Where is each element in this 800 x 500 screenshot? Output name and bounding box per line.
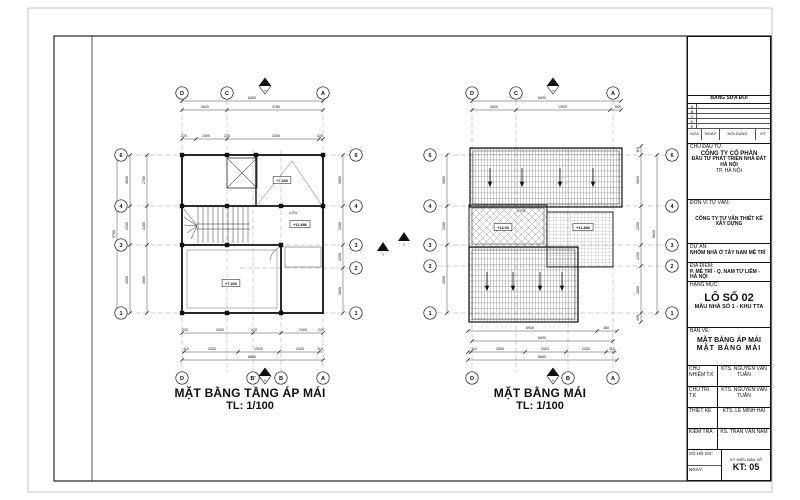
- title-block: BẢNG SỬA ĐỔI A B C D E SỬA NGÀY NỘI DUNG…: [687, 36, 771, 481]
- dimension-text: 110: [317, 347, 323, 351]
- dimension-text: 220: [317, 134, 323, 138]
- location-section: ĐỊA ĐIỂM: P. MỄ TRÌ - Q. NAM TỪ LIÊM - H…: [688, 262, 770, 281]
- dimension-text: 4000: [125, 276, 129, 284]
- signature-name: KTS. NGUYỄN VĂN TUẤN: [718, 366, 770, 386]
- dimension-text: 2100: [338, 222, 342, 230]
- dimension-text: 3340: [272, 134, 280, 138]
- grid-bubble-label: 3: [119, 243, 122, 249]
- dimension-text: 9640: [652, 230, 656, 238]
- grid-bubble-label: D: [180, 91, 184, 97]
- dimension-text: 110: [636, 147, 640, 153]
- grid-bubble-label: 6: [670, 153, 673, 159]
- dimension-text: 3960: [142, 276, 146, 284]
- dimension-text: 2100: [442, 222, 446, 230]
- grid-bubble-label: C: [514, 91, 518, 97]
- dimension-text: 110: [183, 347, 189, 351]
- drawing-sheet: 6400262037802202400220334022022034002202…: [0, 0, 800, 500]
- grid-bubble-label: B': [250, 376, 256, 382]
- consultant-name: CÔNG TY TƯ VẤN THIẾT KẾ XÂY DỰNG: [690, 217, 768, 229]
- grid-bubble-label: 3: [428, 243, 431, 249]
- revision-columns: SỬA NGÀY NỘI DUNG KÝ: [688, 129, 770, 140]
- slope-label: i=2%: [289, 211, 298, 215]
- attic-plan-title: MẶT BẰNG TẦNG ÁP MÁI: [120, 386, 380, 400]
- location-name: P. MỄ TRÌ - Q. NAM TỪ LIÊM - HÀ NỘI: [690, 270, 768, 282]
- dimension-text: 2160: [142, 222, 146, 230]
- dimension-text: 2420: [582, 347, 590, 351]
- dimension-text: 6400: [538, 336, 546, 340]
- grid-bubble-label: 1: [428, 311, 431, 317]
- dimension-text: 8660: [538, 355, 546, 359]
- level-label: +7.400: [225, 282, 237, 286]
- grid-bubble-label: C: [225, 91, 229, 97]
- grid-bubble-label: D: [470, 91, 474, 97]
- signature-name: KS. TRẦN VĂN NAM: [718, 429, 770, 449]
- grid-bubble-label: D: [470, 376, 474, 382]
- roof-plan-title: MẶT BẰNG MÁI: [420, 386, 660, 400]
- consultant-label: ĐƠN VỊ TƯ VẤN:: [690, 201, 768, 207]
- attic-plan-title-block: MẶT BẰNG TẦNG ÁP MÁI TL: 1/100: [120, 386, 380, 412]
- dimension-text: 3780: [272, 105, 280, 109]
- grid-bubble-label: 6: [354, 153, 357, 159]
- level-label: +11.886: [576, 226, 590, 230]
- dimension-text: 1200: [636, 252, 640, 260]
- dimension-text: 2780: [142, 176, 146, 184]
- grid-bubble-label: 1: [119, 311, 122, 317]
- grid-bubble-label: A: [611, 376, 615, 382]
- grid-bubble-label: 1: [354, 311, 357, 317]
- dimension-text: 3600: [338, 176, 342, 184]
- grid-bubble-label: 2: [354, 266, 357, 272]
- dimension-text: 2920: [559, 105, 567, 109]
- signature-row: THIẾT KẾ KTS. LÊ MINH HẢI: [688, 407, 770, 428]
- attic-plan-scale: TL: 1/100: [120, 400, 380, 412]
- dimension-text: 380: [603, 326, 609, 330]
- dimension-text: 540: [615, 105, 621, 109]
- dimension-text: 8660: [248, 355, 256, 359]
- grid-bubble-label: A: [611, 91, 615, 97]
- dimension-text: 3600: [442, 176, 446, 184]
- dimension-text: 2400: [299, 328, 307, 332]
- dimension-text: 2100: [636, 222, 640, 230]
- item-name: LÔ SỐ 02: [690, 292, 768, 305]
- level-label: +11.886: [293, 223, 307, 227]
- dimension-text: 110: [471, 347, 477, 351]
- signature-name: KTS. LÊ MINH HẢI: [718, 408, 770, 428]
- dimension-text: 400: [636, 315, 640, 321]
- grid-bubble-label: A: [321, 376, 325, 382]
- dimension-text: 3300: [496, 347, 504, 351]
- signature-name: KTS. NGUYỄN VĂN TUẤN: [718, 387, 770, 407]
- grid-bubble-label: 1: [670, 311, 673, 317]
- signature-row: CHỦ TRÌ T.K KTS. NGUYỄN VĂN TUẤN: [688, 386, 770, 407]
- dimension-text: 3600: [125, 176, 129, 184]
- item-section: HẠNG MỤC: LÔ SỐ 02 MẪU NHÀ SỐ 1 - KHU TT…: [688, 281, 770, 327]
- dimension-text: 2520: [255, 347, 263, 351]
- grid-bubble-label: D: [180, 376, 184, 382]
- signature-label: CHỦ NHIỆM T.K: [688, 366, 718, 386]
- dimension-text: 6400: [248, 96, 256, 100]
- revision-header: BẢNG SỬA ĐỔI: [688, 96, 770, 104]
- slope-label: i=2%: [517, 209, 526, 213]
- dimension-text: 3303: [208, 347, 216, 351]
- dimension-text: 2100: [125, 222, 129, 230]
- roof-plan-scale: TL: 1/100: [420, 400, 660, 412]
- dimension-text: 2800: [338, 287, 342, 295]
- grid-bubble-label: 3: [354, 243, 357, 249]
- north-marker-label: A: [552, 379, 554, 383]
- signature-row: CHỦ NHIỆM T.K KTS. NGUYỄN VĂN TUẤN: [688, 365, 770, 386]
- dimension-text: 2620: [490, 105, 498, 109]
- dimension-text: 9700: [112, 230, 116, 238]
- title-block-empty: [688, 37, 770, 95]
- grid-bubble-label: 3: [670, 243, 673, 249]
- grid-bubble-label: 2: [428, 264, 431, 270]
- grid-bubble-label: 6: [119, 153, 122, 159]
- north-marker-label: A: [552, 89, 554, 93]
- drawing-label: BẢN VẼ:: [690, 329, 768, 335]
- owner-name-line3: TP. HÀ NỘI: [690, 169, 768, 175]
- file-label: SỐ HỒ SƠ:: [688, 450, 721, 465]
- dimension-text: 220: [251, 328, 257, 332]
- dimension-text: 2420: [296, 347, 304, 351]
- north-marker-label: A: [264, 89, 266, 93]
- north-marker-label: A: [264, 379, 266, 383]
- grid-bubble-label: 2: [670, 264, 673, 270]
- drawing-name-section: BẢN VẼ: MẶT BẰNG ÁP MÁI MẶT BẰNG MÁI: [688, 327, 770, 365]
- grid-bubble-label: B: [279, 376, 283, 382]
- file-info: SỐ HỒ SƠ: NGÀY:: [688, 450, 722, 480]
- dimension-text: 220: [224, 134, 230, 138]
- dimension-text: 220: [182, 328, 188, 332]
- drawing-number: KÝ HIỆU BẢN VẼ KT: 05: [722, 450, 770, 480]
- consultant-section: ĐƠN VỊ TƯ VẤN: CÔNG TY TƯ VẤN THIẾT KẾ X…: [688, 199, 770, 243]
- project-section: DỰ ÁN: NHÓM NHÀ Ở TÂY NAM MỄ TRÌ: [688, 243, 770, 262]
- dimension-text: 2520: [541, 347, 549, 351]
- roof-plan-title-block: MẶT BẰNG MÁI TL: 1/100: [420, 386, 660, 412]
- dimension-text: 220: [181, 134, 187, 138]
- drawing-title-1: MẶT BẰNG ÁP MÁI: [690, 337, 768, 345]
- grid-bubble-label: 6: [428, 153, 431, 159]
- signature-label: CHỦ TRÌ T.K: [688, 387, 718, 407]
- drawing-number-section: SỐ HỒ SƠ: NGÀY: KÝ HIỆU BẢN VẼ KT: 05: [688, 449, 770, 480]
- owner-section: CHỦ ĐẦU TƯ: CÔNG TY CỔ PHẦN ĐẦU TƯ PHÁT …: [688, 143, 770, 199]
- grid-bubble-label: B: [566, 376, 570, 382]
- dimension-text: 4000: [442, 276, 446, 284]
- drawing-number-value: KT: 05: [733, 462, 760, 472]
- level-label: +14.00: [497, 226, 509, 230]
- dimension-text: 1200: [338, 253, 342, 261]
- dimension-text: 2400: [202, 134, 210, 138]
- dimension-text: 220: [318, 328, 324, 332]
- project-name: NHÓM NHÀ Ở TÂY NAM MỄ TRÌ: [690, 251, 768, 257]
- signature-row: KIỂM TRA KS. TRẦN VĂN NAM: [688, 428, 770, 449]
- dimension-text: 6400: [538, 96, 546, 100]
- dimension-text: 2620: [201, 105, 209, 109]
- dimension-text: 3600: [636, 176, 640, 184]
- paper-frame: [28, 8, 772, 492]
- dimension-text: 110: [609, 347, 615, 351]
- revision-table: BẢNG SỬA ĐỔI A B C D E SỬA NGÀY NỘI DUNG…: [688, 95, 770, 143]
- signature-label: THIẾT KẾ: [688, 408, 718, 428]
- item-label: HẠNG MỤC:: [690, 283, 768, 289]
- dimension-text: 3400: [216, 328, 224, 332]
- dimension-text: 5930: [526, 326, 534, 330]
- signature-label: KIỂM TRA: [688, 429, 718, 449]
- date-label: NGÀY:: [688, 465, 721, 481]
- grid-bubble-label: A: [321, 91, 325, 97]
- dimension-text: 2800: [636, 286, 640, 294]
- level-label: +7.400: [276, 179, 288, 183]
- item-subtitle: MẪU NHÀ SỐ 1 - KHU TTA: [690, 304, 768, 310]
- drawing-title-2: MẶT BẰNG MÁI: [690, 345, 768, 353]
